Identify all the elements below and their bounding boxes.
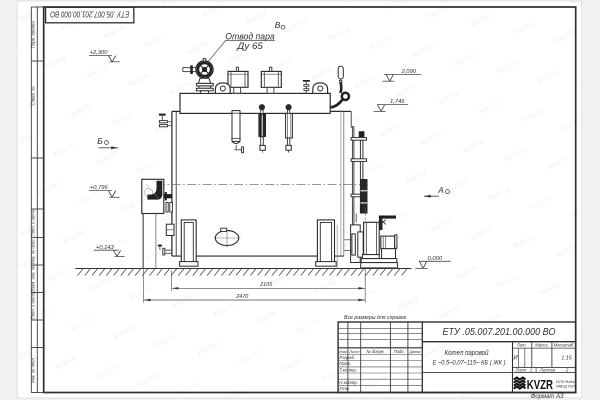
svg-text:Дата: Дата <box>409 349 421 354</box>
svg-text:И: И <box>513 356 518 362</box>
svg-text:Масштаб: Масштаб <box>554 343 574 348</box>
svg-text:Т.контр.: Т.контр. <box>339 367 357 372</box>
svg-text:Листов: Листов <box>539 368 556 373</box>
svg-text:ЗАВОД РЭП: ЗАВОД РЭП <box>556 384 576 388</box>
svg-text:Разраб.: Разраб. <box>339 355 355 360</box>
svg-text:Формат А3: Формат А3 <box>531 394 564 400</box>
svg-text:Инв. № подл.: Инв. № подл. <box>31 357 36 383</box>
svg-text:KVZR: KVZR <box>527 378 553 392</box>
svg-text:Утв.: Утв. <box>339 386 349 391</box>
svg-text:Перв. примен.: Перв. примен. <box>31 20 36 48</box>
svg-text:А: А <box>437 185 444 195</box>
svg-text:КОТЕЛЬНЫЙ: КОТЕЛЬНЫЙ <box>556 380 577 384</box>
svg-text:2105: 2105 <box>259 282 273 288</box>
svg-text:Лист: Лист <box>515 368 527 373</box>
svg-text:2470: 2470 <box>235 294 248 300</box>
svg-text:Лит.: Лит. <box>516 343 527 348</box>
svg-text:Ду 65: Ду 65 <box>236 41 264 51</box>
svg-text:Все размеры для справок: Все размеры для справок <box>344 315 407 321</box>
svg-text:Подп. и дата: Подп. и дата <box>31 292 36 319</box>
svg-text:ЕТУ .05.007.201.00.000 ВО: ЕТУ .05.007.201.00.000 ВО <box>443 327 556 338</box>
svg-text:В: В <box>275 20 281 30</box>
svg-text:Е –0,5–0,07–115– КБ ( ЖК ): Е –0,5–0,07–115– КБ ( ЖК ) <box>433 360 506 367</box>
svg-text:Справ. №: Справ. № <box>31 86 36 105</box>
svg-text:Н.контр.: Н.контр. <box>339 380 358 385</box>
svg-text:Пров.: Пров. <box>339 361 351 366</box>
svg-text:Котел паровой: Котел паровой <box>445 348 489 357</box>
svg-text:Масса: Масса <box>535 343 548 348</box>
svg-text:Отвод пара: Отвод пара <box>225 31 275 41</box>
svg-text:Взам. инв. №: Взам. инв. № <box>31 265 36 291</box>
svg-text:1:15: 1:15 <box>561 356 572 362</box>
svg-text:Лист: Лист <box>348 349 360 354</box>
svg-text:Подп. и дата: Подп. и дата <box>31 209 36 236</box>
svg-text:Изм: Изм <box>339 349 347 354</box>
svg-text:Подп.: Подп. <box>394 349 405 354</box>
svg-text:Инв. № дубл.: Инв. № дубл. <box>31 238 36 264</box>
svg-text:№ докум.: № докум. <box>366 349 384 354</box>
svg-text:1: 1 <box>530 368 532 373</box>
svg-text:Б: Б <box>97 136 103 146</box>
svg-text:ЕТУ .05.007.201.00.000 ВО: ЕТУ .05.007.201.00.000 ВО <box>50 10 129 20</box>
